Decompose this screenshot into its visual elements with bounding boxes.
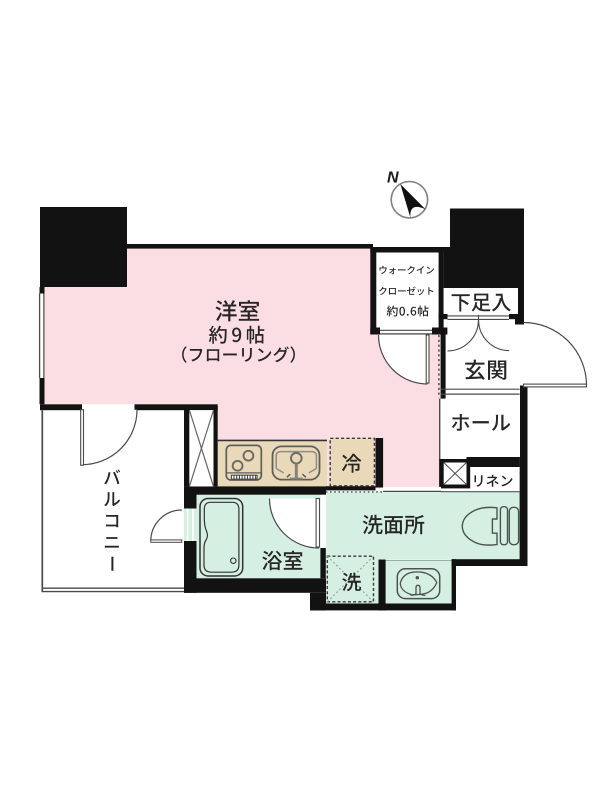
svg-text:N: N (387, 170, 399, 187)
